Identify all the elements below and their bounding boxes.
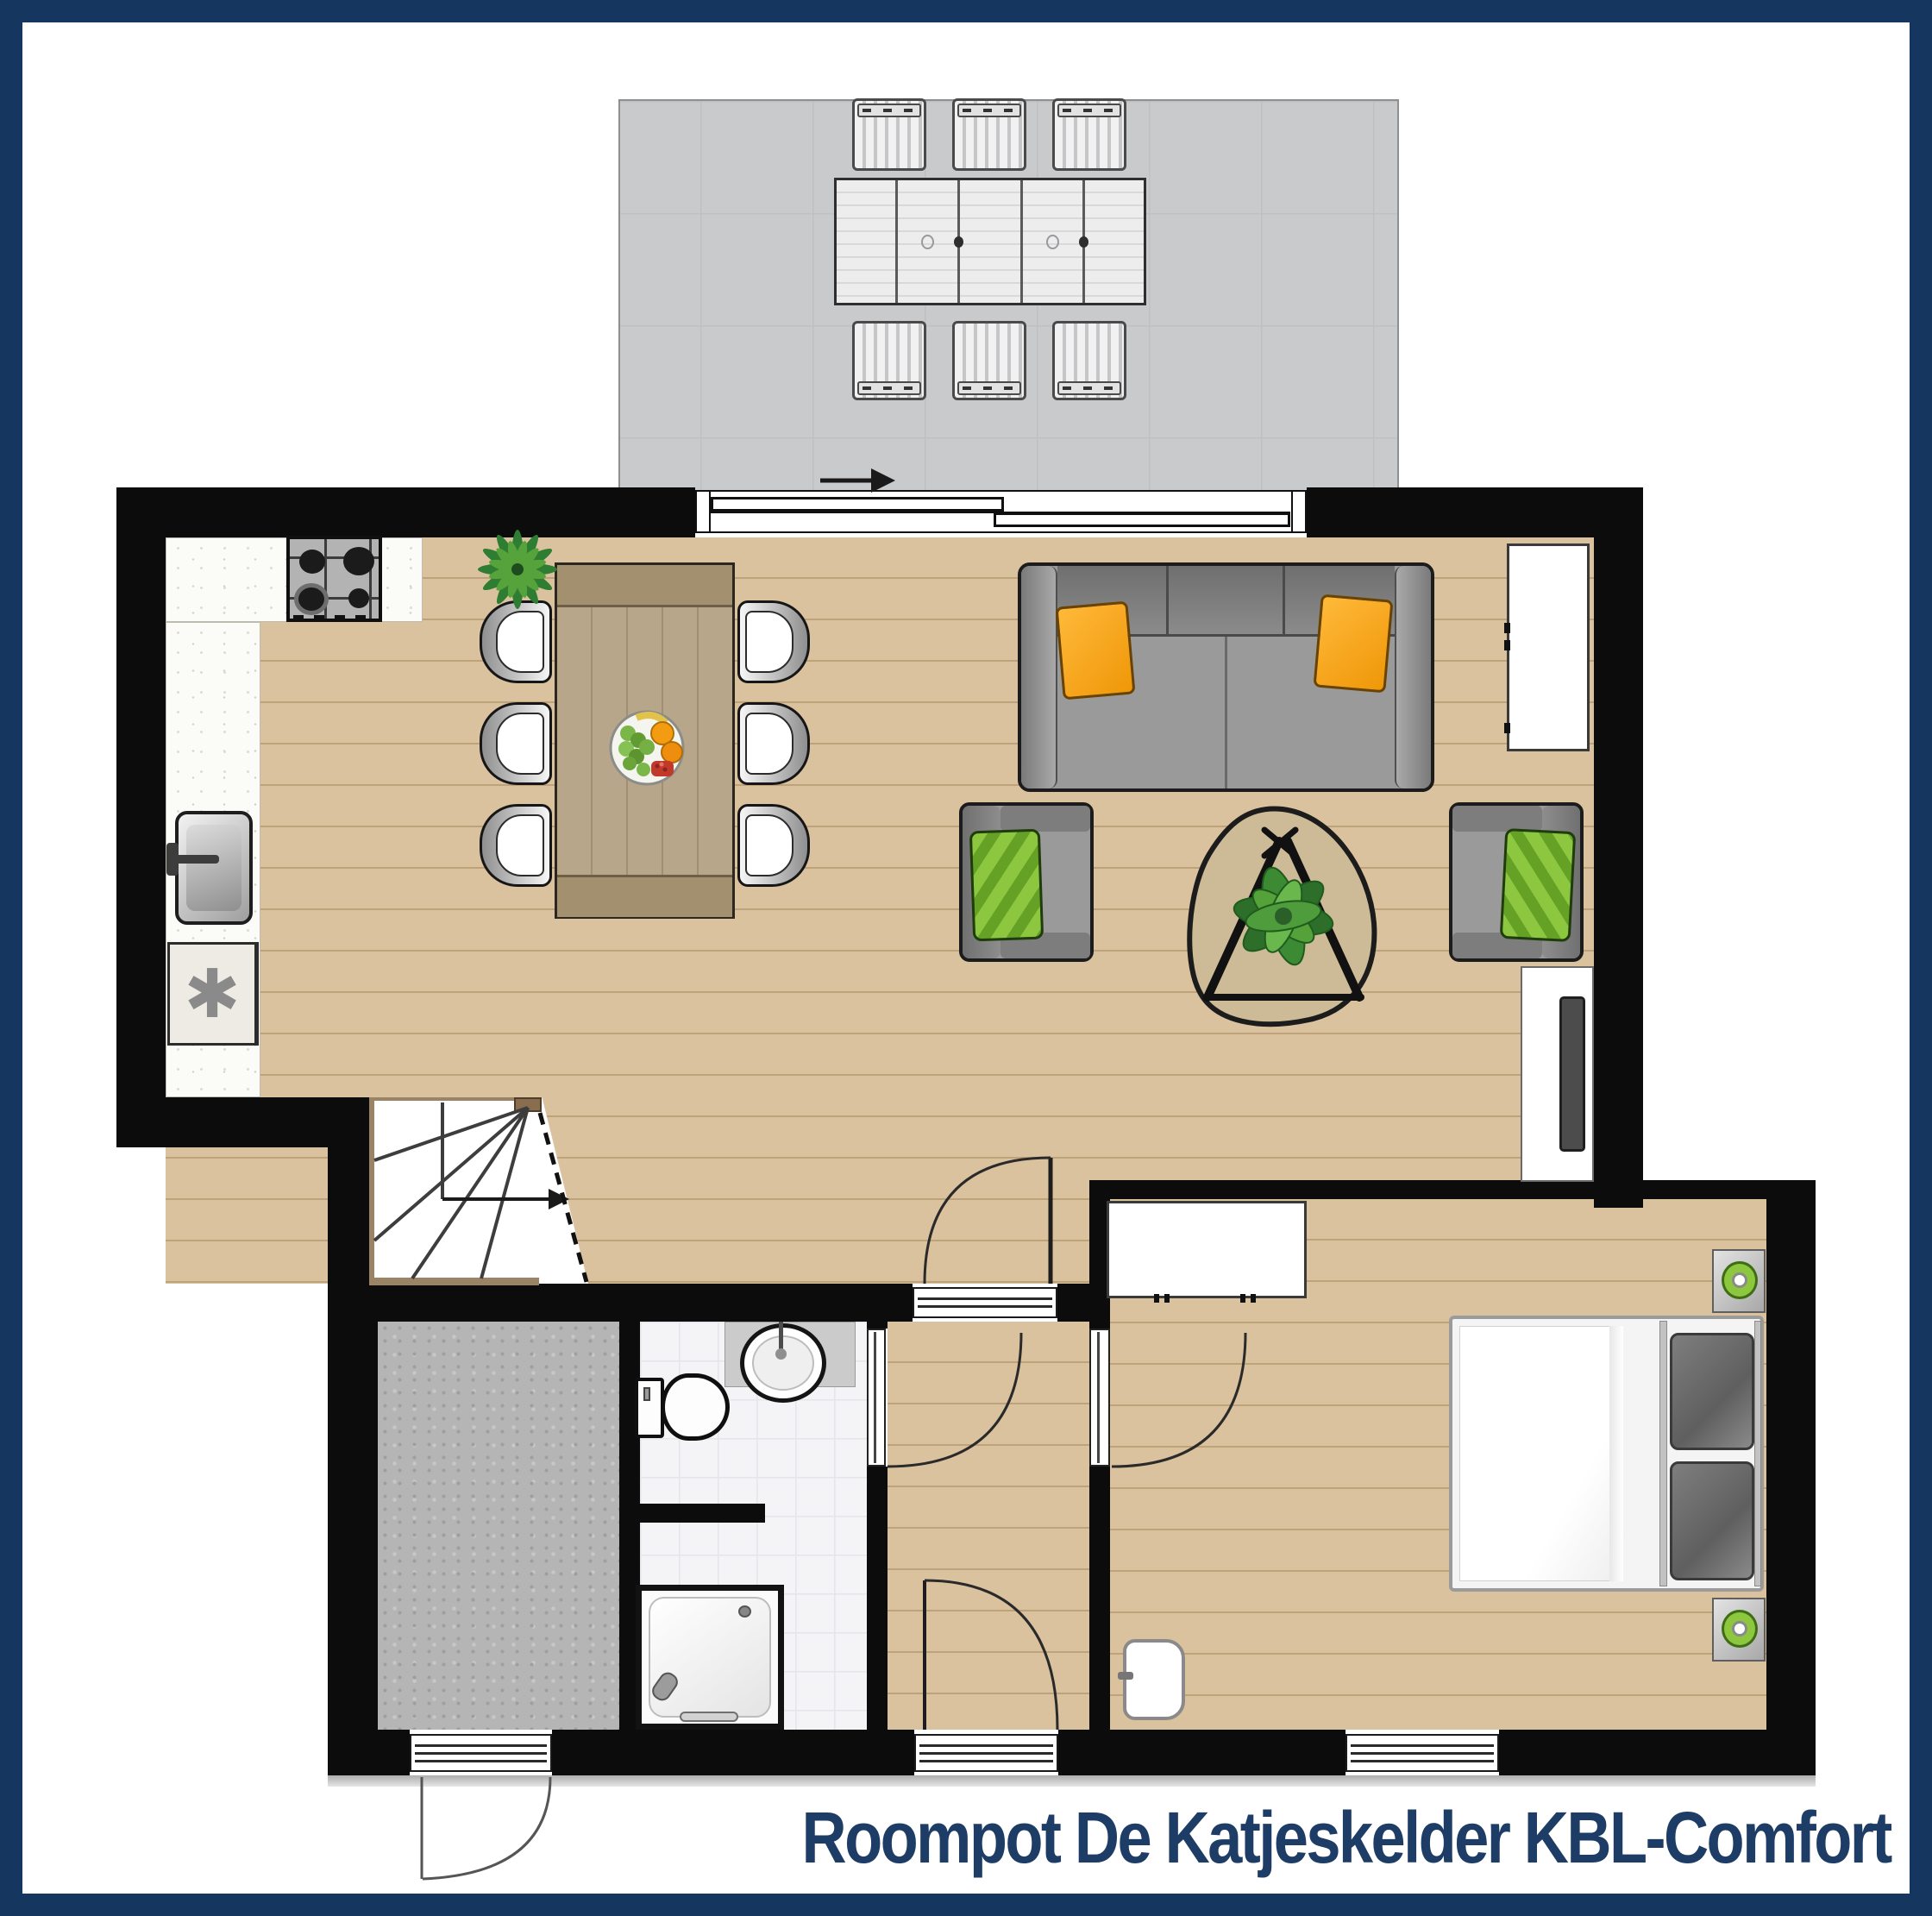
living-hall-door-arc <box>925 1158 1051 1284</box>
stairs-treads <box>374 1102 528 1278</box>
floor-plan-page: ✱ <box>0 0 1932 1916</box>
bathroom-door-arc <box>888 1333 1021 1467</box>
bedroom-door-arc <box>1112 1333 1245 1467</box>
page-title: Roompot De Katjeskelder KBL-Comfort <box>802 1796 1891 1880</box>
storage-exterior-door-arc <box>423 1777 550 1879</box>
plan-overlay <box>0 0 1932 1916</box>
kitchen-plant-icon <box>478 530 557 609</box>
terrace-arrow-icon <box>820 468 895 493</box>
hall-exterior-door-arc <box>925 1580 1057 1730</box>
fruit-bowl <box>611 712 683 784</box>
